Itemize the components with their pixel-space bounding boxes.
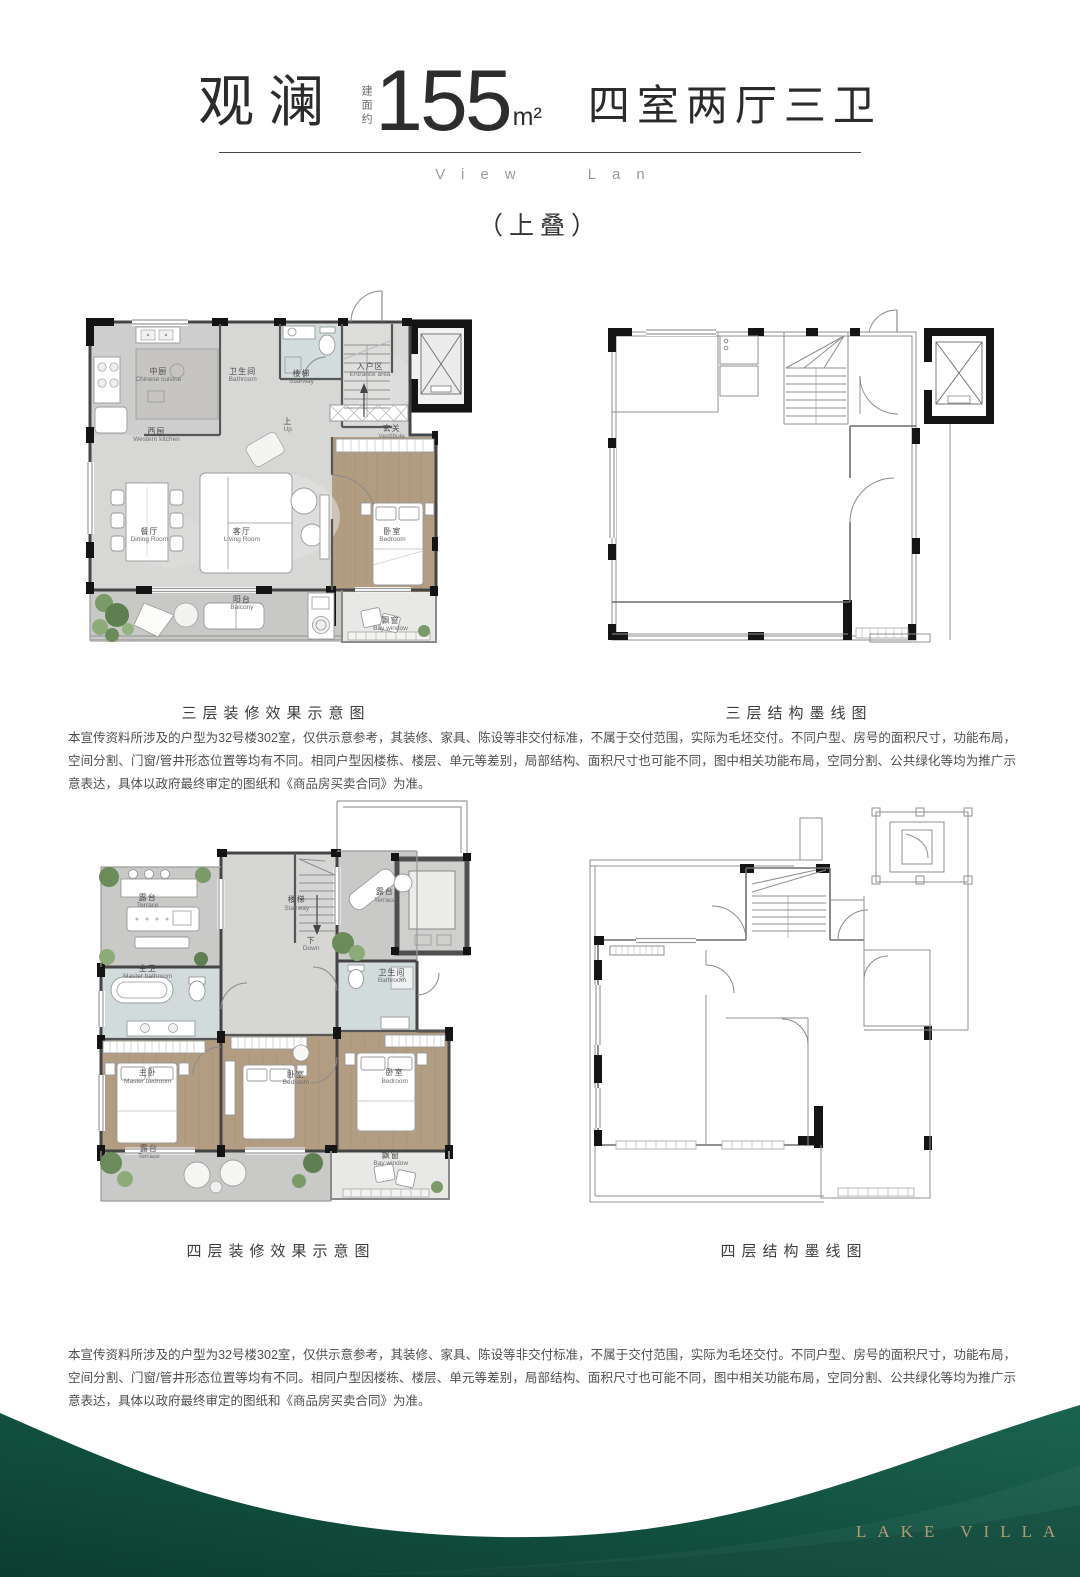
elevator-roof <box>872 808 972 884</box>
floor4-structural-plan-drawing <box>576 800 1012 1210</box>
door-arcs <box>706 906 888 1045</box>
dining-table <box>111 483 183 561</box>
door-arcs <box>850 310 898 522</box>
wall-piers <box>594 936 932 1150</box>
area-unit: m² <box>513 105 542 137</box>
bay-window <box>821 1145 930 1198</box>
header: 观澜 建面约 155 m² 四室两厅三卫 <box>0 66 1080 137</box>
area-value: 155 <box>375 66 510 137</box>
header-divider <box>219 152 861 153</box>
layout-description: 四室两厅三卫 <box>588 86 882 137</box>
brochure-page: 观澜 建面约 155 m² 四室两厅三卫 View Lan （上叠） <box>0 0 1080 1577</box>
floor3-structural-plan-drawing <box>598 308 1000 652</box>
stairs <box>740 864 830 940</box>
bedroom-partition <box>850 426 916 602</box>
floor3-decorated-caption: 三层装修效果示意图 <box>80 702 472 723</box>
floor4-decorated-plan: 露台Terrace楼梯Stairway下Down露台Terrace主卫Maste… <box>85 795 477 1217</box>
floor4-decorated-caption: 四层装修效果示意图 <box>85 1240 477 1261</box>
floor3-decorated-plan-drawing <box>80 287 472 662</box>
floor3-disclaimer: 本宣传资料所涉及的户型为32号楼302室，仅供示意参考，其装修、家具、陈设等非交… <box>68 727 1016 796</box>
elevator-shaft <box>924 328 994 424</box>
elevator-shaft <box>410 320 472 412</box>
project-name: 观澜 <box>198 75 338 137</box>
floor4-decorated-plan-drawing <box>85 795 477 1217</box>
floor3-structural-plan <box>598 308 1000 652</box>
floor4-structural-caption: 四层结构墨线图 <box>576 1240 1012 1261</box>
stairs <box>784 332 848 424</box>
footer-wave <box>0 1395 1080 1577</box>
stack-tag: （上叠） <box>0 206 1080 242</box>
subtitle-en: View Lan <box>0 166 1080 183</box>
brand-logo: LAKE VILLA <box>856 1522 1066 1542</box>
utility-partitions <box>612 332 758 412</box>
area-prefix: 建面约 <box>360 85 371 127</box>
floor3-structural-caption: 三层结构墨线图 <box>598 702 1000 723</box>
floor3-decorated-plan: 中厨Chinese cuisine卫生间Bathroom楼梯Stairway上U… <box>80 287 472 662</box>
floor4-structural-plan <box>576 800 1012 1210</box>
